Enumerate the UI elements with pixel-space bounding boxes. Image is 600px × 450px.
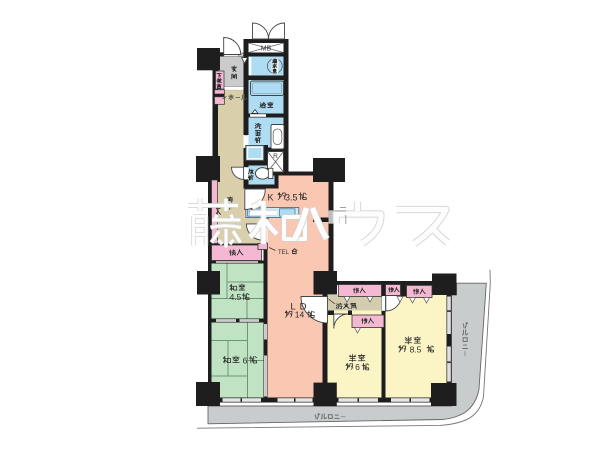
- svg-text:14: 14: [295, 310, 305, 320]
- svg-text:3.5: 3.5: [285, 193, 298, 203]
- svg-text:6: 6: [355, 362, 360, 372]
- svg-text:MB: MB: [261, 45, 272, 52]
- svg-text:K: K: [267, 193, 273, 203]
- svg-text:TEL: TEL: [278, 250, 290, 256]
- svg-text:R: R: [273, 153, 278, 160]
- svg-text:4.5: 4.5: [230, 292, 242, 302]
- svg-text:6: 6: [243, 356, 248, 366]
- svg-text:8.5: 8.5: [410, 345, 422, 355]
